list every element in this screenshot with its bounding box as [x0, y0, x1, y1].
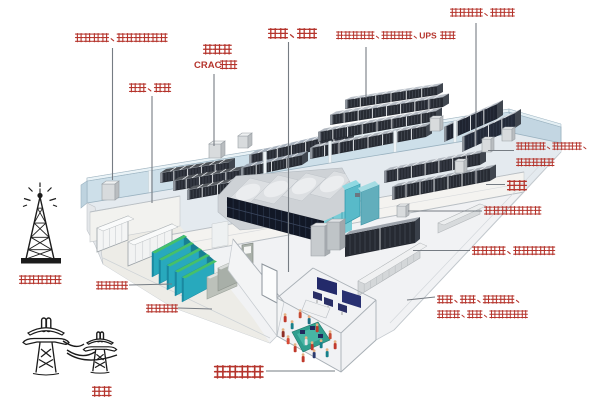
svg-text:UPS: UPS [419, 30, 437, 40]
svg-text:CRAC: CRAC [194, 60, 222, 71]
